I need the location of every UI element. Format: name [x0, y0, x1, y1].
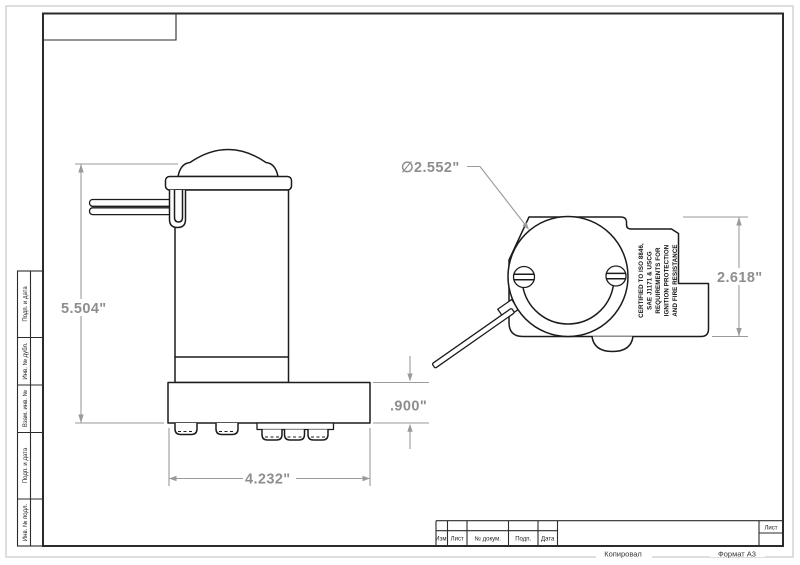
terminal-wire-lower	[90, 208, 178, 215]
margin-column: Подп. и дата Инв. № дубл. Взам. инв. № П…	[18, 271, 44, 546]
frame-topleft-box	[43, 14, 176, 41]
drawing-sheet: Подп. и дата Инв. № дубл. Взам. инв. № П…	[0, 0, 800, 565]
foot	[308, 430, 328, 441]
title-col-data: Дата	[541, 537, 555, 543]
margin-label: Подп. и дата	[23, 286, 29, 322]
sheet-cell-label: Лист	[764, 526, 777, 532]
pump-base	[168, 383, 370, 424]
svg-text:IGNITION PROTECTION: IGNITION PROTECTION	[664, 244, 671, 316]
title-col-docnum: № докум.	[475, 536, 502, 543]
dim-diameter: ∅2.552"	[401, 160, 529, 230]
housing-bump	[592, 337, 633, 352]
margin-label: Инв. № подл.	[22, 503, 29, 541]
dim-text-housing-height: 2.618"	[717, 270, 763, 286]
margin-label: Подп. и дата	[23, 447, 29, 483]
motor-dome	[178, 150, 278, 177]
foot	[216, 423, 238, 435]
margin-label: Взам. инв. №	[22, 390, 29, 427]
bottom-plate	[257, 423, 334, 430]
top-view: CERTIFIED TO ISO 8846, SAE J1171 & USCG …	[432, 217, 708, 369]
certification-text: CERTIFIED TO ISO 8846, SAE J1171 & USCG …	[638, 243, 679, 318]
copied-label: Копировал	[604, 550, 642, 559]
dim-text-base-height: .900"	[390, 399, 427, 415]
dim-text-diameter: ∅2.552"	[401, 160, 460, 176]
title-col-list: Лист	[451, 537, 464, 543]
svg-text:CERTIFIED TO ISO 8846,: CERTIFIED TO ISO 8846,	[638, 243, 645, 318]
engineering-drawing: Подп. и дата Инв. № дубл. Взам. инв. № П…	[0, 0, 800, 565]
foot	[285, 430, 305, 441]
title-col-podp: Подп.	[515, 537, 531, 543]
motor-cap-band	[166, 177, 292, 191]
front-view	[90, 150, 371, 441]
screw-left	[514, 267, 535, 288]
lead-wire	[432, 308, 515, 368]
svg-text:REQUIREMENTS FOR: REQUIREMENTS FOR	[655, 247, 662, 314]
svg-text:AND FIRE RESISTANCE: AND FIRE RESISTANCE	[672, 244, 679, 316]
foot	[175, 423, 197, 435]
format-label: Формат А3	[718, 550, 756, 559]
terminal-wire-upper	[90, 200, 178, 207]
motor-body	[175, 190, 289, 383]
dim-base-height: .900"	[373, 356, 431, 449]
margin-label: Инв. № дубл.	[22, 342, 29, 379]
title-col-izm: Изм.	[435, 537, 448, 543]
foot	[262, 430, 282, 441]
screw-right	[606, 266, 626, 286]
title-block: Изм. Лист № докум. Подп. Дата Лист	[435, 521, 783, 546]
dim-text-height: 5.504"	[61, 301, 107, 317]
svg-text:SAE J1171 & USCG: SAE J1171 & USCG	[647, 251, 654, 310]
dim-text-width: 4.232"	[245, 472, 291, 488]
